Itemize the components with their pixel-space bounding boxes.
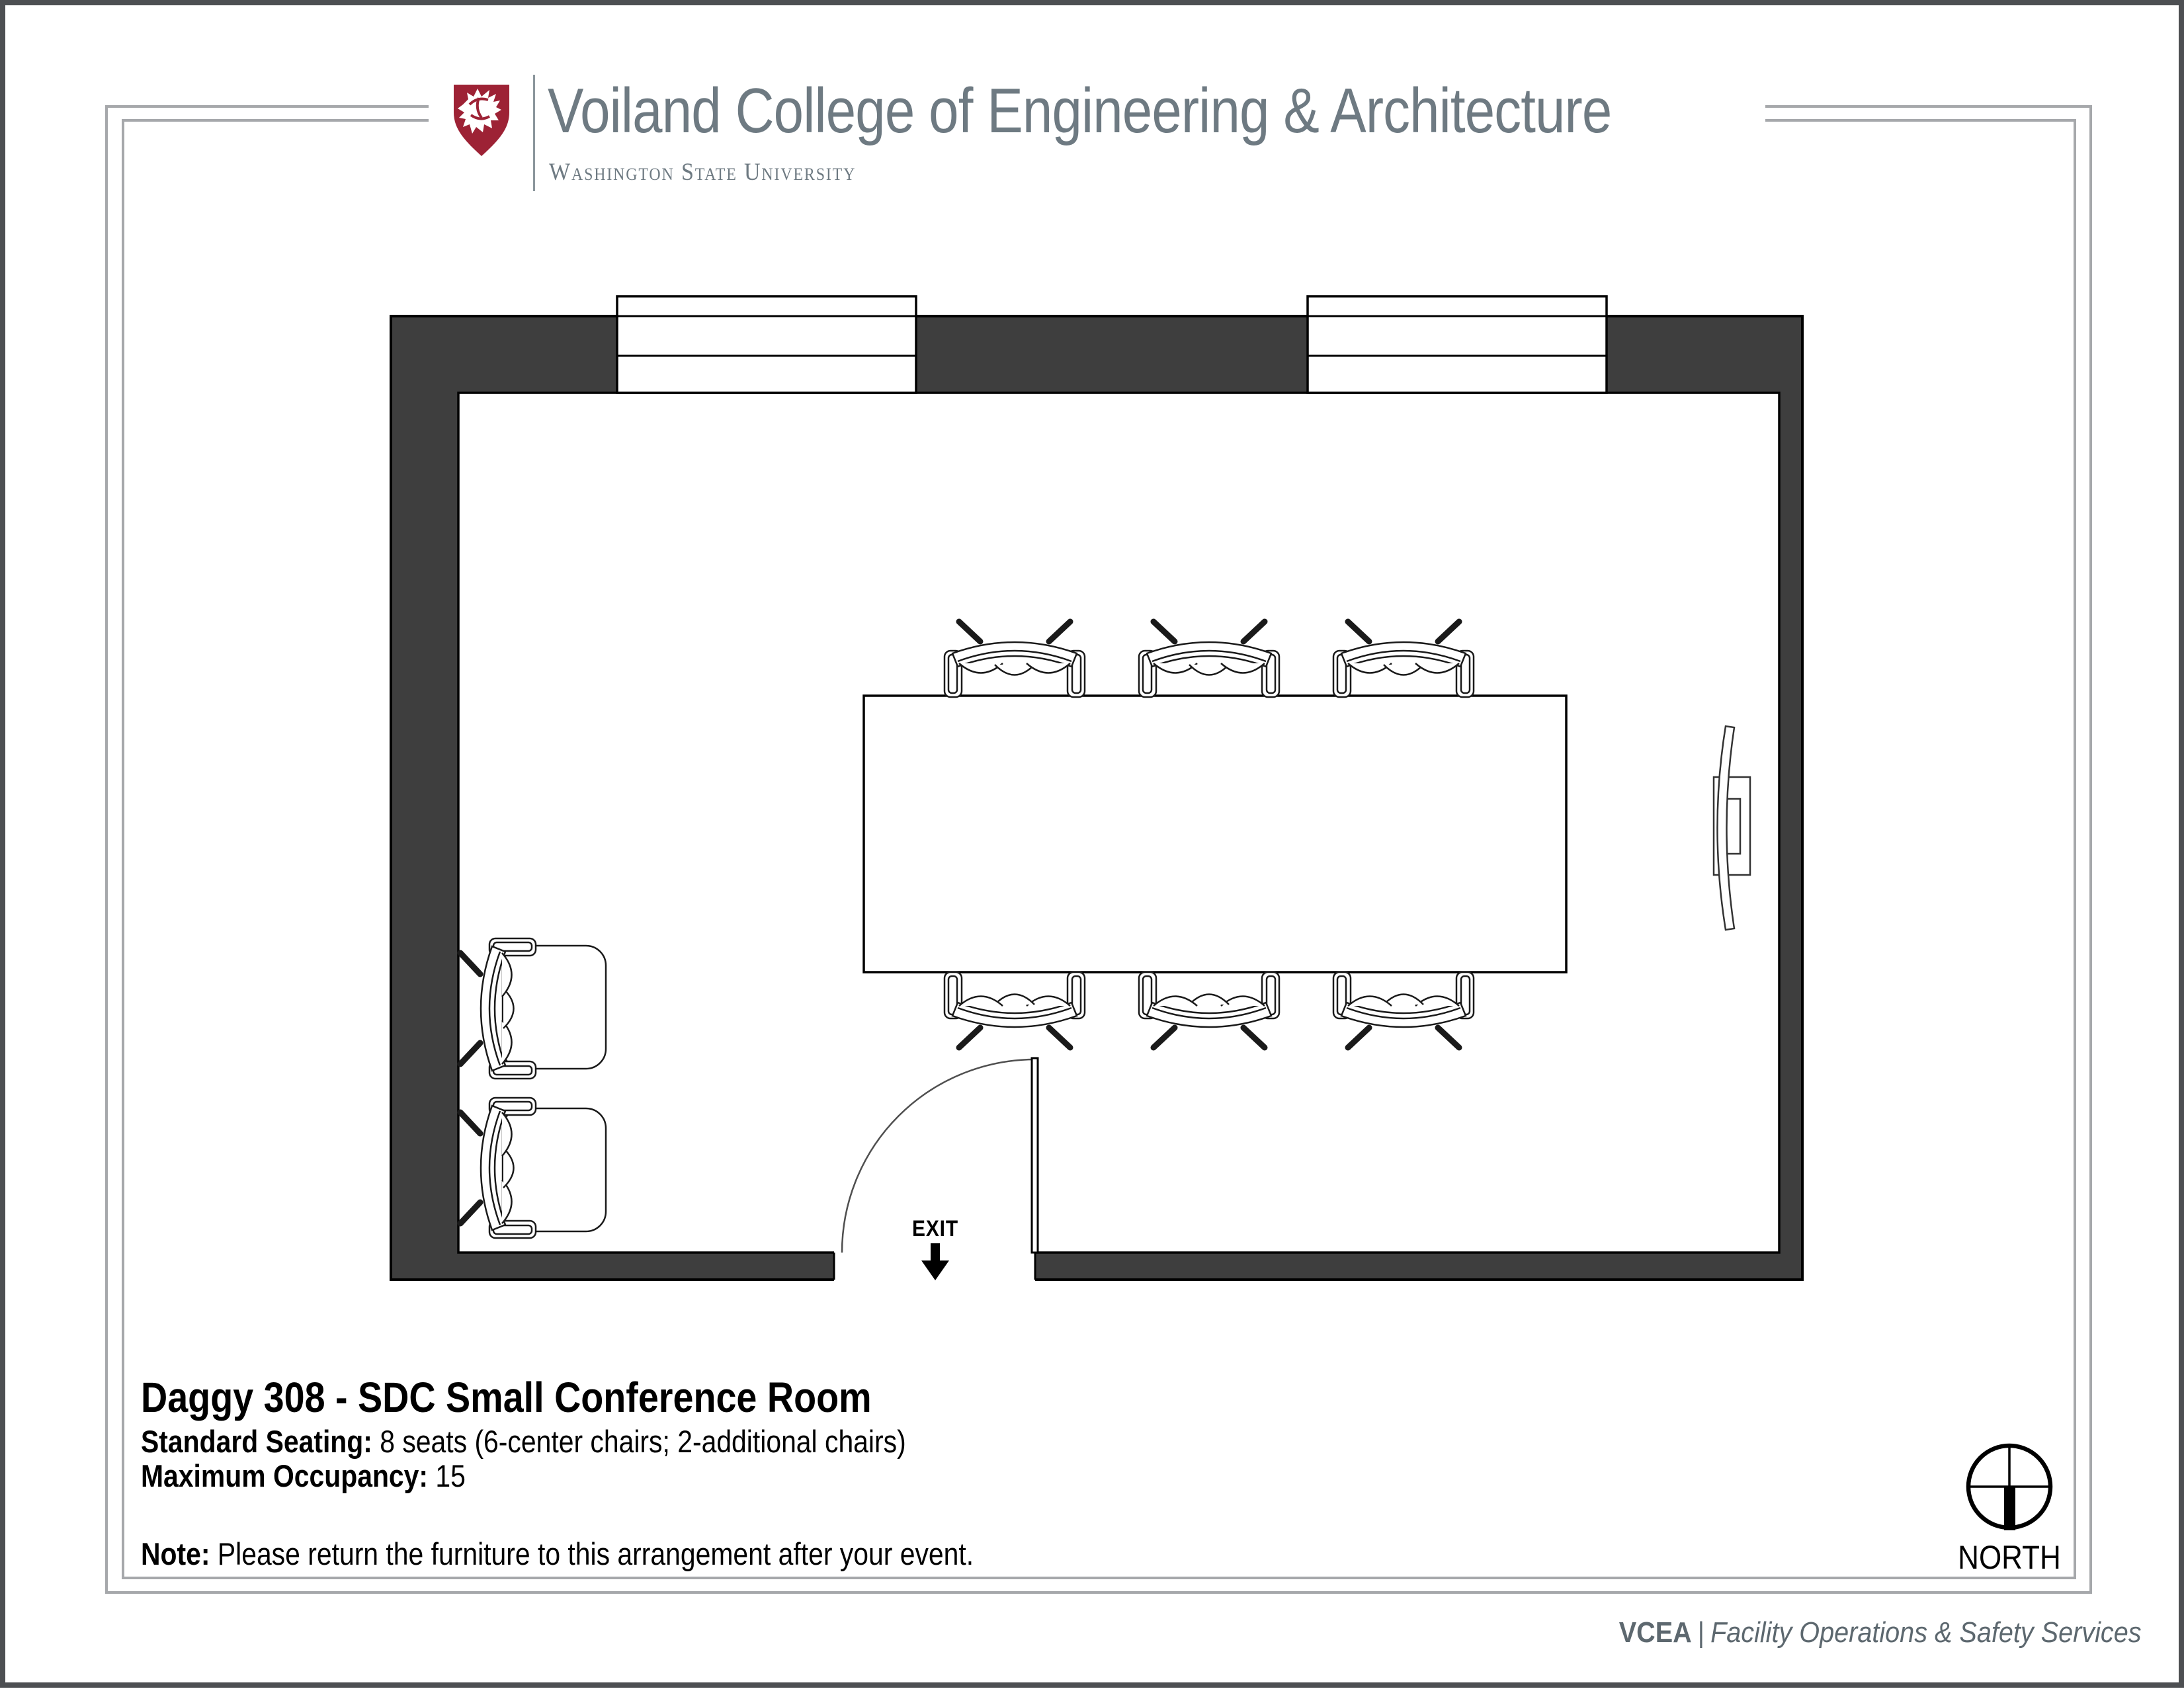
chair-bottom-2 xyxy=(1139,972,1279,1048)
exit-arrow-icon xyxy=(921,1243,949,1280)
chair-top-2 xyxy=(1139,622,1279,697)
footer-separator: | xyxy=(1692,1616,1710,1649)
window-unit-right xyxy=(1308,296,1607,393)
seating-label: Standard Seating: xyxy=(141,1424,372,1459)
note-label: Note: xyxy=(141,1536,210,1571)
chair-bottom-3 xyxy=(1333,972,1474,1048)
chair-bottom-1 xyxy=(945,972,1085,1048)
note-line: Note: Please return the furniture to thi… xyxy=(141,1536,974,1572)
conference-table xyxy=(864,696,1566,972)
seating-line: Standard Seating: 8 seats (6-center chai… xyxy=(141,1423,906,1460)
side-chair-upper xyxy=(460,938,606,1079)
occupancy-label: Maximum Occupancy: xyxy=(141,1458,428,1493)
side-chair-lower xyxy=(460,1098,606,1238)
window-unit-left xyxy=(617,296,916,393)
chair-top-1 xyxy=(945,622,1085,697)
north-compass-icon xyxy=(1968,1446,2050,1530)
note-value: Please return the furniture to this arra… xyxy=(210,1536,974,1571)
occupancy-line: Maximum Occupancy: 15 xyxy=(141,1458,466,1494)
wall-display xyxy=(1714,726,1750,930)
room-title: Daggy 308 - SDC Small Conference Room xyxy=(141,1373,872,1422)
chair-top-3 xyxy=(1333,622,1474,697)
exit-label: EXIT xyxy=(877,1216,993,1242)
occupancy-value: 15 xyxy=(428,1458,466,1493)
north-label: NORTH xyxy=(1951,1538,2068,1577)
footer: VCEA|Facility Operations & Safety Servic… xyxy=(1619,1616,2142,1649)
sheet-background: Voiland College of Engineering & Archite… xyxy=(0,0,2184,1688)
seating-value: 8 seats (6-center chairs; 2-additional c… xyxy=(372,1424,906,1459)
footer-org: VCEA xyxy=(1619,1616,1692,1649)
footer-department: Facility Operations & Safety Services xyxy=(1711,1616,2142,1649)
